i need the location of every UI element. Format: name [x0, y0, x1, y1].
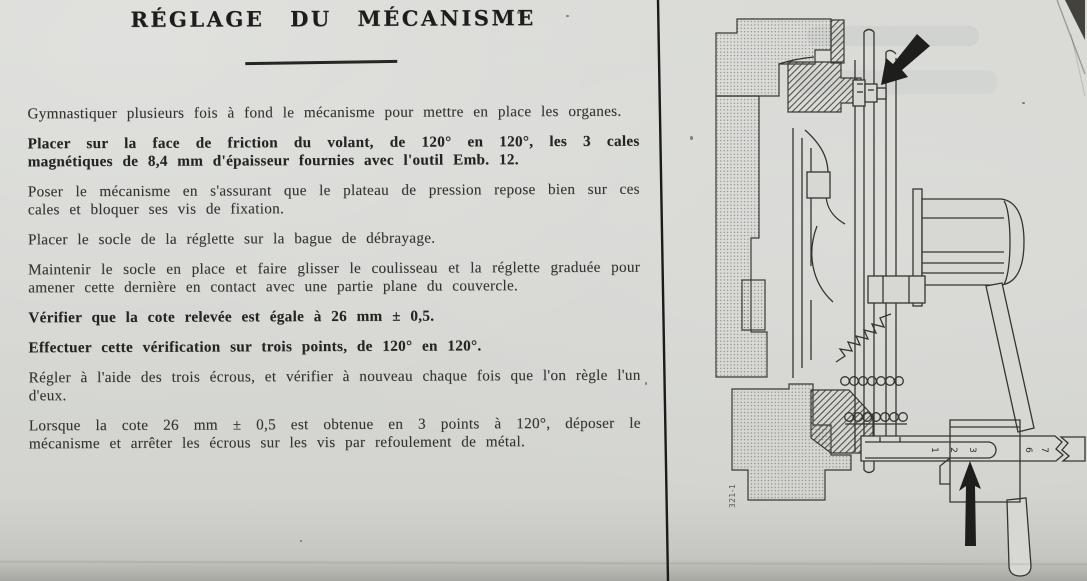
paragraph: Régler à l'aide des trois écrous, et vér…: [29, 366, 641, 405]
ink-speck: [300, 540, 302, 542]
ink-speck: [566, 15, 569, 17]
paragraph: Maintenir le socle en place et faire gli…: [28, 258, 640, 297]
text-column: RÉGLAGE DU MÉCANISME Gymnastiquer plusie…: [27, 5, 641, 465]
page-edge-corner: [1057, 0, 1085, 96]
page-title: RÉGLAGE DU MÉCANISME: [27, 5, 639, 33]
ruler-digit: 1: [929, 447, 939, 453]
gauge-rod-upper: [986, 283, 1034, 432]
paragraph: Vérifier que la cote relevée est égale à…: [28, 306, 640, 327]
clutch-cross-section-diagram: 1 2 3 6 7 321-1: [655, 0, 1087, 581]
ruler-digit: 3: [967, 447, 977, 453]
paragraph: Placer sur la face de friction du volant…: [28, 132, 640, 171]
scanned-page: RÉGLAGE DU MÉCANISME Gymnastiquer plusie…: [0, 0, 1087, 581]
paragraph-block: Gymnastiquer plusieurs fois à fond le mé…: [27, 102, 641, 453]
paragraph: Lorsque la cote 26 mm ± 0,5 est obtenue …: [29, 414, 641, 453]
paragraph: Gymnastiquer plusieurs fois à fond le mé…: [27, 102, 639, 123]
paragraph: Poser le mécanisme en s'assurant que le …: [28, 180, 640, 219]
paragraph: Placer le socle de la réglette sur la ba…: [28, 228, 640, 249]
ink-speck: [517, 11, 520, 14]
graduated-ruler: 1 2 3 6 7: [861, 436, 1085, 461]
arrow-bottom-icon: [959, 461, 981, 546]
ink-speck: [645, 382, 647, 385]
paragraph: Effectuer cette vérification sur trois p…: [28, 336, 640, 357]
ruler-digit: 6: [1023, 447, 1033, 453]
ruler-digit: 7: [1039, 447, 1049, 453]
title-underline: [245, 60, 397, 65]
column-divider-line: [658, 0, 668, 581]
figure-number-label: 321-1: [728, 484, 737, 508]
